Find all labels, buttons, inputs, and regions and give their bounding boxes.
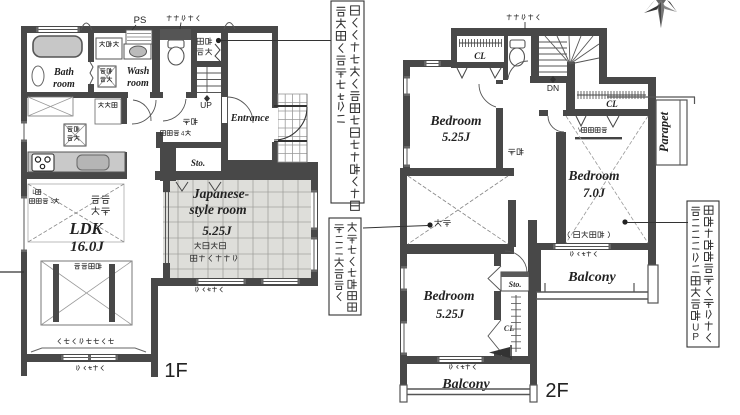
- svg-text:5.25J: 5.25J: [202, 223, 232, 238]
- svg-text:V: V: [578, 128, 582, 134]
- svg-text:UP: UP: [200, 100, 212, 110]
- svg-text:1F: 1F: [164, 360, 187, 382]
- svg-text:5.25J: 5.25J: [442, 130, 471, 144]
- svg-text:Entrance: Entrance: [230, 113, 270, 124]
- svg-text:Bedroom: Bedroom: [567, 168, 619, 183]
- svg-text:7.0J: 7.0J: [583, 186, 606, 200]
- svg-text:DN: DN: [547, 83, 559, 93]
- svg-text:5.25J: 5.25J: [436, 307, 465, 321]
- svg-text:Balcony: Balcony: [441, 377, 490, 392]
- svg-text:Japanese-: Japanese-: [192, 186, 250, 201]
- svg-text:Bedroom: Bedroom: [422, 288, 474, 303]
- svg-text:CL: CL: [504, 324, 514, 333]
- svg-text:LDK: LDK: [69, 219, 104, 238]
- svg-text:Wash: Wash: [127, 66, 150, 77]
- svg-text:2F: 2F: [545, 380, 568, 402]
- svg-text:PS: PS: [134, 15, 147, 26]
- svg-text:CL: CL: [474, 51, 486, 61]
- svg-text:Bath: Bath: [53, 67, 74, 78]
- svg-text:P: P: [692, 332, 699, 343]
- svg-text:16.0J: 16.0J: [70, 239, 104, 255]
- svg-text:CL: CL: [606, 99, 618, 109]
- svg-text:Parapet: Parapet: [657, 111, 671, 152]
- svg-text:style room: style room: [188, 202, 246, 217]
- svg-text:Balcony: Balcony: [567, 270, 616, 285]
- svg-text:Bedroom: Bedroom: [429, 113, 481, 128]
- svg-text:room: room: [53, 79, 75, 90]
- svg-text:room: room: [127, 78, 149, 89]
- svg-text:Sto.: Sto.: [509, 280, 522, 289]
- svg-text:Sto.: Sto.: [191, 158, 205, 168]
